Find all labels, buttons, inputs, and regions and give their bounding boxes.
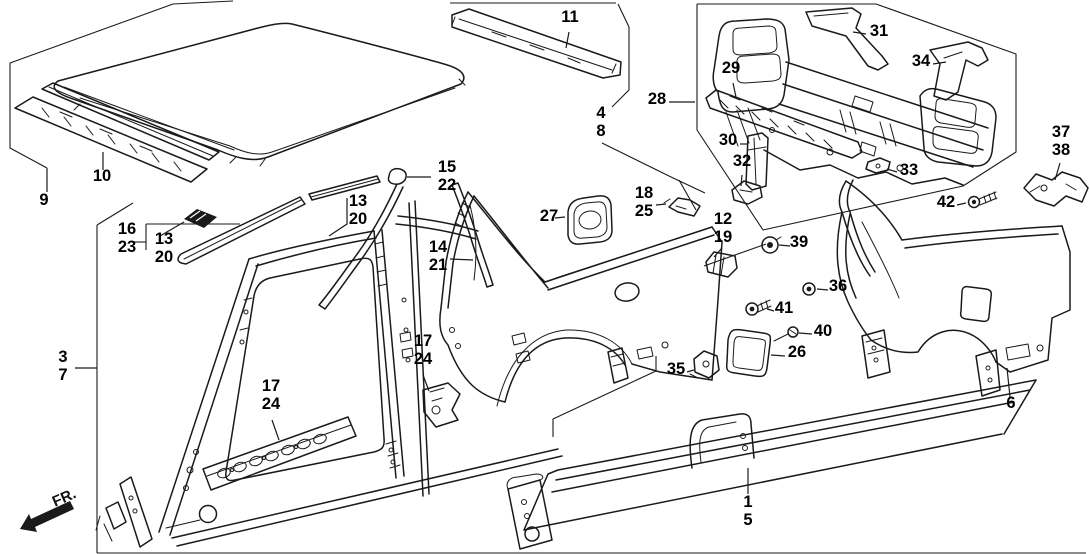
roof-molding-front [178, 197, 305, 264]
callout-leader-line [566, 32, 569, 48]
part-callout-4: 4 [596, 104, 606, 122]
part-callout-42: 42 [937, 193, 955, 211]
callout-leader-line [687, 370, 694, 372]
part-callout-20: 20 [349, 210, 367, 228]
part-callout-40: 40 [814, 322, 832, 340]
fuel-lid [727, 330, 771, 377]
nut-36 [803, 283, 815, 295]
part-callout-1: 1 [743, 493, 752, 511]
part-callout-13: 13 [155, 230, 173, 248]
part-callout-10: 10 [93, 167, 111, 185]
part-callout-31: 31 [870, 22, 888, 40]
part-callout-12: 12 [714, 210, 732, 228]
lid-latch [690, 351, 719, 378]
part-callout-24: 24 [262, 395, 281, 413]
group-boundary-line [612, 4, 629, 107]
callout-leader-line [272, 420, 279, 440]
part-callout-17: 17 [414, 332, 432, 350]
part-callout-25: 25 [635, 202, 653, 220]
group-boundaries [10, 1, 1086, 553]
part-callout-14: 14 [429, 238, 448, 256]
group-boundary-line [704, 244, 766, 266]
part-callout-39: 39 [790, 233, 808, 251]
callout-leader-line [329, 198, 347, 236]
group-boundary-line [602, 143, 705, 193]
callout-leader-line [771, 355, 785, 356]
part-callout-3: 3 [58, 348, 67, 366]
part-callout-13: 13 [349, 192, 367, 210]
parts-diagram-page: FR. 910114828293134303233373842152213201… [0, 0, 1090, 554]
bulkhead-clip-33 [866, 158, 890, 173]
part-callout-24: 24 [414, 350, 433, 368]
callout-leader-line [1055, 163, 1060, 180]
part-callout-41: 41 [775, 299, 793, 317]
callout-leader-line [957, 203, 966, 205]
quarter-panel-outer [837, 180, 1070, 396]
part-callout-7: 7 [58, 366, 67, 384]
part-callout-17: 17 [262, 377, 280, 395]
part-callout-9: 9 [39, 191, 48, 209]
part-callout-38: 38 [1052, 141, 1070, 159]
group-boundary-line [697, 4, 1016, 230]
part-callout-32: 32 [733, 152, 751, 170]
part-callout-23: 23 [118, 238, 136, 256]
part-callout-18: 18 [635, 184, 653, 202]
part-callout-20: 20 [155, 248, 173, 266]
part-callout-29: 29 [722, 59, 740, 77]
callout-leader-line [779, 245, 790, 246]
callout-leader-line [817, 289, 828, 290]
part-callout-30: 30 [719, 131, 737, 149]
bulkhead-bracket-34 [930, 42, 988, 100]
bolt-41 [746, 300, 771, 315]
part-callout-22: 22 [438, 176, 456, 194]
part-callout-26: 26 [788, 343, 806, 361]
group-boundary-line [553, 356, 656, 437]
fr-label: FR. [50, 485, 79, 510]
part-callout-15: 15 [438, 158, 456, 176]
part-callout-34: 34 [912, 52, 931, 70]
callout-leader-line [733, 83, 736, 97]
part-callout-16: 16 [118, 220, 136, 238]
part-callout-28: 28 [648, 90, 666, 108]
part-callout-6: 6 [1006, 394, 1015, 412]
roof-panel [54, 23, 465, 166]
part-callout-35: 35 [667, 360, 685, 378]
rear-bulkhead-assembly [706, 8, 996, 204]
callout-leader-line [741, 175, 742, 186]
side-sill [507, 380, 1036, 549]
part-callout-21: 21 [429, 256, 447, 274]
callout-leader-line [767, 309, 774, 311]
part-callout-33: 33 [900, 161, 918, 179]
callout-leader-line [656, 204, 666, 205]
bolt-fastener [969, 192, 998, 208]
part-callout-11: 11 [561, 8, 578, 26]
part-callout-19: 19 [714, 228, 732, 246]
parts-diagram: FR. 910114828293134303233373842152213201… [0, 0, 1090, 554]
screw-40 [774, 327, 798, 341]
fuel-filler-recess [568, 196, 612, 244]
roof-molding-rear [309, 176, 380, 200]
part-callout-37: 37 [1052, 123, 1070, 141]
part-callout-36: 36 [829, 277, 847, 295]
sill-stiffener-front [203, 417, 356, 490]
roof-side-rail [452, 9, 621, 78]
part-callout-5: 5 [743, 511, 752, 529]
grommet-39 [762, 237, 781, 253]
part-callout-27: 27 [540, 207, 558, 225]
callout-leader-line [799, 333, 812, 334]
part-callout-8: 8 [596, 122, 605, 140]
fr-direction-arrow: FR. [20, 485, 79, 532]
